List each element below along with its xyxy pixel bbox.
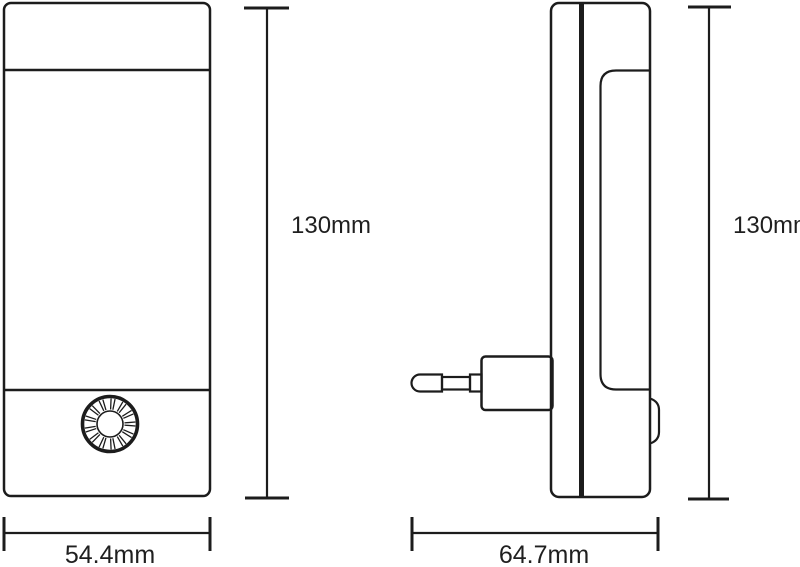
depth-dimension-side: 64.7mm	[412, 517, 658, 567]
knob-outer-ring	[83, 397, 138, 452]
height-dimension-side: 130mm	[688, 7, 800, 499]
knob-spoke	[86, 416, 96, 419]
back-housing-inset-outline	[601, 71, 651, 390]
knob-spoke	[85, 426, 96, 428]
plug-pin-shaft	[442, 377, 470, 390]
knob-inner-ring	[97, 411, 123, 437]
wall-plug	[412, 357, 553, 411]
knob-spoke	[113, 399, 115, 410]
drawing-canvas: 130mm 130mm 54.4mm	[0, 0, 800, 567]
plug-housing	[482, 357, 553, 411]
knob-spoke	[124, 425, 135, 426]
knob-spoke	[92, 406, 100, 414]
brightness-knob	[83, 397, 138, 452]
knob-spoke	[90, 433, 99, 440]
side-depth-label: 64.7mm	[499, 541, 589, 567]
side-view	[412, 3, 660, 497]
height-dimension-front: 130mm	[244, 8, 371, 498]
dimension-drawing: 130mm 130mm 54.4mm	[0, 0, 800, 567]
plug-pin-tip	[412, 375, 443, 392]
sensor-bump	[650, 399, 659, 444]
knob-spoke	[92, 434, 100, 442]
plug-pin-collar	[470, 375, 482, 392]
knob-spokes	[85, 399, 136, 450]
knob-spoke	[86, 429, 96, 432]
side-height-label: 130mm	[733, 212, 800, 239]
front-width-label: 54.4mm	[65, 541, 155, 567]
front-body-outline	[4, 3, 210, 496]
front-height-label: 130mm	[291, 212, 371, 239]
knob-spoke	[90, 409, 99, 416]
knob-spoke	[85, 420, 96, 422]
width-dimension-front: 54.4mm	[4, 517, 210, 567]
knob-spoke	[124, 422, 135, 423]
front-view	[4, 3, 210, 496]
knob-spoke	[113, 438, 115, 449]
